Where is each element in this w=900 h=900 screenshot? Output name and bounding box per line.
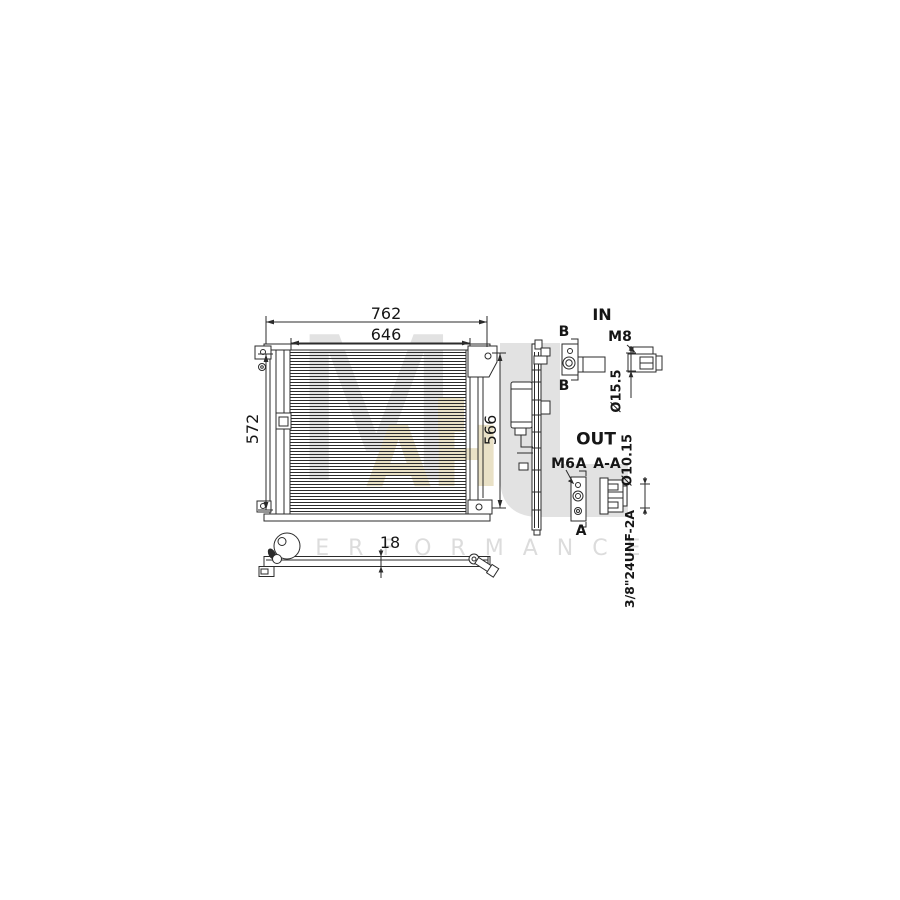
outlet-fitting-thread-label: 3/8"24UNF-2A <box>624 510 637 608</box>
dim-depth-label: 18 <box>380 535 400 551</box>
front-view-condenser <box>255 344 497 521</box>
inlet-diameter-label: Ø15.5 <box>611 369 624 412</box>
outlet-title: OUT <box>576 432 616 449</box>
dim-left-height-label: 572 <box>245 414 261 445</box>
outlet-section-mark-top: A <box>576 457 587 471</box>
outlet-section-mark-bottom: A <box>576 524 587 538</box>
condenser-drawing <box>0 0 900 900</box>
outlet-detail-view <box>566 470 650 527</box>
inlet-section-mark-bottom: B <box>559 379 570 393</box>
dim-right-height-label: 566 <box>483 415 499 446</box>
inlet-section-mark-top: B <box>559 325 570 339</box>
outlet-diameter-label: Ø10.15 <box>622 434 635 486</box>
dim-core-width-label: 646 <box>371 327 402 343</box>
inlet-title: IN <box>592 307 611 323</box>
side-view-condenser <box>511 340 550 535</box>
technical-drawing-page: M AH PERFORMANCE <box>0 0 900 900</box>
outlet-section-view-label: A-A <box>593 457 620 471</box>
inlet-thread-label: M8 <box>608 330 632 344</box>
dim-overall-width-label: 762 <box>371 306 402 322</box>
outlet-thread-label: M6 <box>551 457 575 471</box>
